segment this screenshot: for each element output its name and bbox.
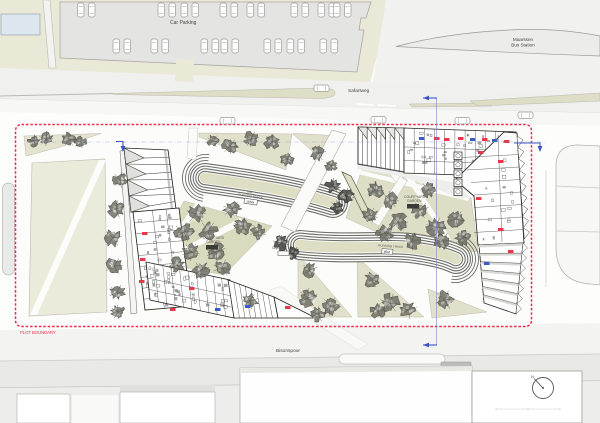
svg-text:PLOT BOUNDARY: PLOT BOUNDARY [20,330,56,335]
svg-text:Car Parking: Car Parking [170,20,197,26]
svg-text:Bus Station: Bus Station [511,43,535,48]
svg-text:GARDEN: GARDEN [272,246,286,250]
svg-text:N: N [531,374,534,379]
svg-text:85M: 85M [384,250,391,254]
svg-text:GARDEN: GARDEN [407,199,422,203]
svg-text:Maarssen: Maarssen [513,37,534,42]
svg-text:GARDEN: GARDEN [206,240,221,244]
svg-text:Bisonspoor: Bisonspoor [276,348,300,354]
svg-text:Safariweg: Safariweg [348,88,370,94]
